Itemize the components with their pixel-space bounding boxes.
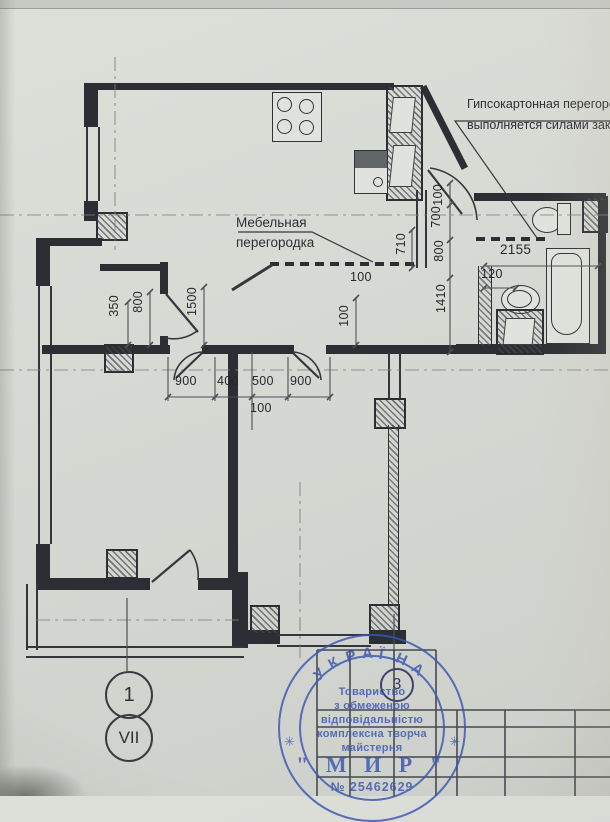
company-stamp: УКРАЇНА ✳ ✳ Товариство з обмеженою відпо… [278, 634, 466, 822]
dimension-label: 800 [131, 291, 145, 313]
dimension-label: 900 [290, 374, 312, 388]
stamp-line: з обмеженою [278, 700, 466, 712]
dimension-label: 1410 [434, 284, 448, 313]
gypsum-partition-note: Гипсокартонная перегородка выполняется с… [467, 95, 610, 134]
dimension-label: 120 [481, 267, 503, 281]
dimension-label: 1500 [185, 287, 199, 316]
note-line: перегородка [236, 233, 314, 253]
dimension-label: 2155 [500, 242, 531, 257]
door-swings [152, 168, 477, 582]
dimension-label: 100 [431, 184, 445, 206]
dimension-label: 100 [250, 401, 272, 415]
axis-label: 1 [123, 684, 134, 707]
note-line: Гипсокартонная перегородка [467, 95, 610, 113]
dimension-label: 100 [337, 305, 351, 327]
dimension-label: 710 [394, 233, 408, 255]
dimension-label: 800 [432, 240, 446, 262]
stamp-arc-letter: А [362, 645, 374, 663]
furniture-partition-note: Мебельная перегородка [236, 213, 314, 252]
note-line: Мебельная [236, 213, 314, 233]
stamp-line: Товариство [278, 686, 466, 698]
axis-marker-vii: VII [105, 714, 153, 762]
centerlines [0, 57, 610, 662]
axis-label: VII [119, 728, 140, 748]
dimension-label: 350 [107, 295, 121, 317]
stamp-number: № 25462629 [278, 780, 466, 794]
stamp-line: комплексна творча [278, 728, 466, 740]
dimension-label: 400 [217, 374, 239, 388]
dimension-label: 700 [429, 206, 443, 228]
dimension-label: 500 [252, 374, 274, 388]
note-line: выполняется силами заказчика [467, 116, 610, 134]
stamp-company-name: " М И Р " [278, 752, 466, 778]
floor-plan-photo: { "notes": { "furniture_partition": { "l… [0, 0, 610, 796]
dimension-label: 900 [175, 374, 197, 388]
dimension-label: 100 [350, 270, 372, 284]
stamp-line: відповідальністю [278, 714, 466, 726]
axis-marker-1: 1 [105, 671, 153, 719]
